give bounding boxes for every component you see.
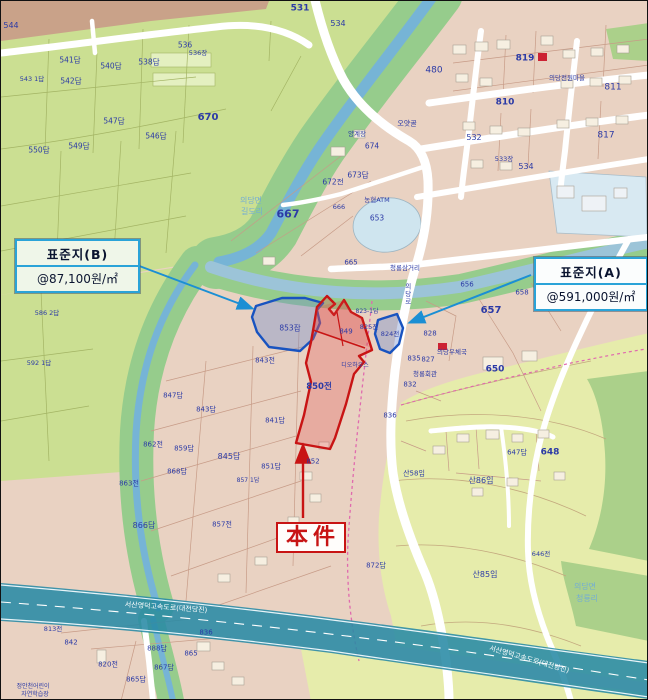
subject-label-box: 本件	[276, 522, 346, 553]
paddy-542	[153, 73, 215, 86]
callout-a-value: @591,000원/㎡	[536, 285, 646, 309]
subject-label-text: 本件	[286, 524, 340, 550]
callout-a-title: 표준지(A)	[536, 259, 646, 285]
landmark-icon	[538, 53, 547, 61]
callout-standard-b: 표준지(B) @87,100원/㎡	[15, 239, 140, 293]
paddy-541	[151, 53, 211, 67]
callout-b-value: @87,100원/㎡	[17, 267, 138, 291]
callout-standard-a: 표준지(A) @591,000원/㎡	[534, 257, 648, 311]
callout-b-title: 표준지(B)	[17, 241, 138, 267]
cadastral-map: 531534544543 1답541답542답540답538답536536장54…	[0, 0, 648, 700]
post-office-icon	[438, 343, 447, 350]
map-canvas	[1, 1, 648, 700]
